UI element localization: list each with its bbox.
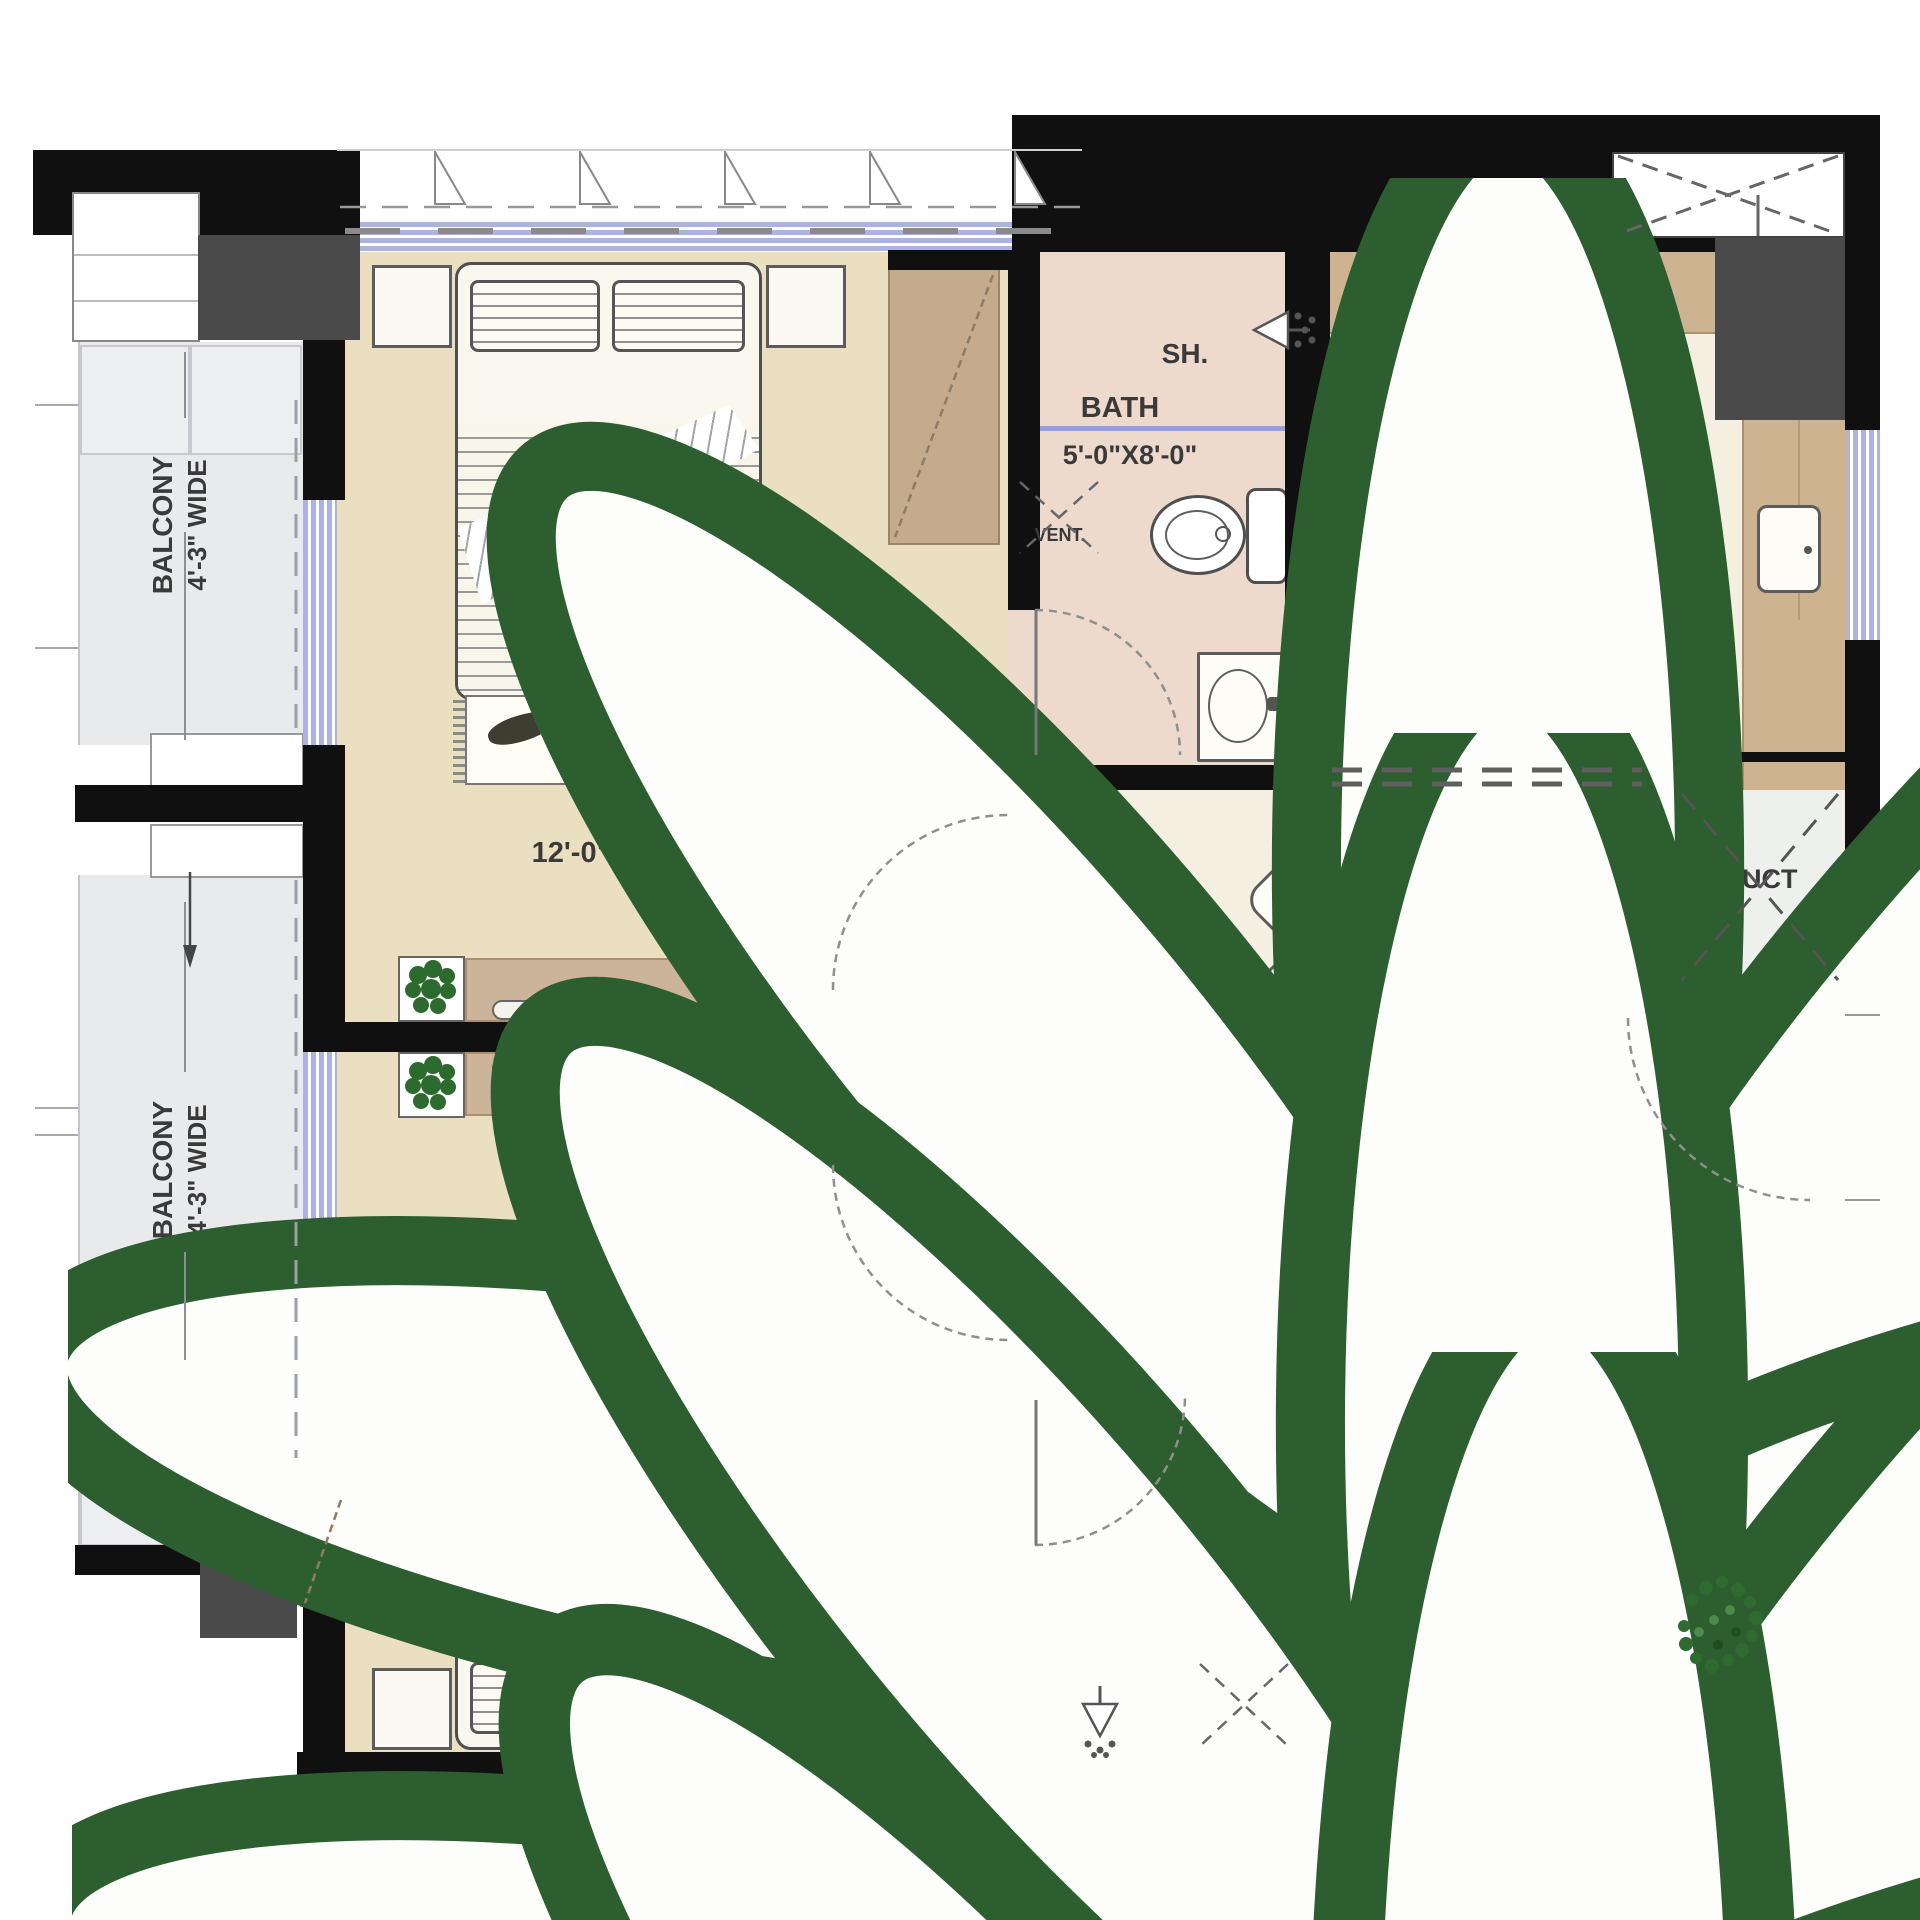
kitchen-label: KITCHEN 9'-9"X9'-6" [1417,568,1717,649]
nightstand [372,1668,452,1750]
bath-top-vent-label: VENT. [1018,524,1102,547]
room-name: BED [455,1185,755,1228]
balcony-bottom-window [303,1052,337,1445]
room-name: DUCT [1678,862,1842,897]
rug-ornament [666,715,728,739]
stove-burner [1501,272,1535,306]
wall-bottom [297,1752,1880,1792]
coffee-table-inner [1486,1344,1552,1488]
wall-bath-bottom-right [1285,1385,1315,1752]
column [1715,238,1845,420]
floor-plan: BALCONY 4'-3" WIDE BALCONY 4'-3" WIDE BE… [0,0,1920,1920]
tv-console [1772,1212,1845,1432]
wardrobe-top [888,268,1000,545]
plant-pot [398,1052,465,1118]
room-size: 12'-0"X13'-0" [455,1228,755,1266]
canopy-ticks [435,152,1045,204]
wall-bed-bath-1 [1008,250,1040,610]
sofa-cushion-line [1305,1383,1410,1385]
balcony-top-window [303,500,337,745]
room-size: 4'-3" WIDE [181,459,215,590]
bath-bottom-door-opening [1008,1400,1040,1545]
stove-burner [1498,309,1544,355]
bedroom-top-window [337,222,1082,252]
room-size: 9'-9"X9'-6" [1417,611,1717,649]
kitchen-window [1845,430,1880,640]
door-leaf-bedroom-top [830,982,1008,998]
duct-label: DUCT [1678,862,1842,897]
area-value: 1159.00 SFT [1360,1235,1700,1275]
pillow [470,280,600,352]
balcony-divider-box [150,733,304,787]
lounge-label: LOUNGE/DINN. 15'-2"X17'-9" [1320,1072,1700,1153]
wall-top-right-lower [1612,238,1718,252]
nightstand [766,1668,846,1750]
stove-icon [1487,253,1585,370]
room-size: 5'-0"X8'-0" [1040,438,1220,473]
wall-right-upper [1845,115,1880,430]
stove-burner [1543,314,1577,348]
room-name: BED [470,792,770,835]
toilet-tank [1246,488,1288,584]
area-label: AREA 1159.00 SFT [1360,1192,1700,1275]
shower-label: SH. [1048,1644,1158,1680]
bath-top-door-opening [1008,610,1040,755]
balcony-divider-box [150,824,304,878]
door-leaf-bedroom-bottom [830,1157,1008,1173]
plant-pot [398,956,465,1022]
wall-left-step [303,340,345,500]
washbasin-icon [1197,652,1290,762]
stove-burner [1536,267,1582,313]
bedroom-top-label: BED 12'-0"X13'-0" [470,792,770,873]
wall-top-main [1012,115,1612,252]
coffee-table [1476,1334,1562,1498]
window-mullion [74,254,198,256]
column [200,1468,297,1638]
sink-tap [1804,546,1812,554]
vent-label: VENT. [1018,524,1102,547]
window-mullion [74,300,198,302]
area-title: AREA [1360,1192,1700,1235]
nightstand [766,265,846,348]
entrance-opening [1845,1015,1880,1200]
kitchen-sink-icon [1757,505,1821,593]
nightstand [372,265,452,348]
shower-label: SH. [1130,336,1240,372]
wardrobe-bottom [300,1495,345,1607]
bath-bottom-size: 5'-0"X8'-0" [1028,1598,1208,1633]
wall-right-lower [1845,1200,1880,1792]
toilet-flush [1215,526,1231,542]
vent-panel [1612,152,1845,238]
bath-bottom-shower-label: SH. [1048,1644,1158,1680]
wall-left-low [303,1445,345,1495]
stove-handle [1500,374,1584,388]
duct-wall-top [1678,752,1845,762]
room-name: KITCHEN [1417,568,1717,611]
pillow [612,280,745,352]
stove-panel [1490,256,1582,267]
balcony-bottom-label: BALCONY 4'-3" WIDE [135,1050,225,1290]
sofa-arm-pillow [1404,1620,1516,1654]
wall-balcony-divider [75,785,315,822]
wall-bed-bath2 [1008,1545,1040,1752]
wall-bath-kitchen [1285,250,1330,765]
sofa-corner-cushion [1322,1568,1398,1644]
balcony-top-label: BALCONY 4'-3" WIDE [135,405,225,645]
toilet-icon [1147,1482,1243,1562]
column [198,235,360,340]
room-size: 5'-0"X8'-0" [1028,1598,1208,1633]
rug-ornament [575,1375,706,1402]
wall-bed-top-stub [888,250,1012,270]
wall-bath-bottom-top [1008,1355,1315,1385]
door-leaf-entrance [1797,1015,1813,1201]
dresser-mirror [492,1000,692,1020]
bath-top-size: 5'-0"X8'-0" [1040,438,1220,473]
basin-bowl [1208,669,1268,743]
wall-bedroom-divider [303,1022,1040,1052]
room-name: LOUNGE/DINN. [1320,1072,1700,1115]
wall-top-right-upper [1612,115,1845,152]
room-name: BALCONY [145,456,181,594]
bedroom-bottom-label: BED 12'-0"X13'-0" [455,1185,755,1266]
rug-ornament [577,732,708,759]
wall-bath-top-bottom [1008,765,1330,790]
railing-notch [35,405,78,1135]
toilet-icon [1150,495,1246,575]
bath-top-label: BATH [1045,390,1195,428]
tv-icon [1756,1256,1778,1430]
pillow [470,1662,600,1734]
column [1700,1433,1845,1563]
sofa-cushion-line [1305,1475,1410,1477]
bath-top-shower-label: SH. [1130,336,1240,372]
dresser-mirror [492,1058,692,1078]
duct-wall-bottom [1645,985,1880,1015]
duct-wall-left [1645,758,1678,1015]
rug-ornament [485,705,560,751]
basin-bowl [1206,1405,1266,1477]
wall-bed-lounge-mid [1008,990,1040,1165]
wall-balcony-end [75,1545,205,1575]
pillow [612,1662,745,1734]
room-size: 12'-0"X13'-0" [470,835,770,873]
room-name: BALCONY [145,1101,181,1239]
rug-ornament [483,1366,557,1408]
balcony-railing-panel [80,1432,190,1546]
bath-bottom-label: BATH [1040,1552,1195,1590]
bath-bottom-vent-label: VENT. [1204,1698,1288,1721]
vent-label: VENT. [1204,1698,1288,1721]
room-name: BATH [1040,1552,1195,1590]
toilet-flush [1212,1513,1228,1529]
basin-tap [1265,1433,1279,1447]
corner-window [72,192,200,342]
room-size: 15'-2"X17'-9" [1320,1115,1700,1153]
wall-right-mid [1845,640,1880,1015]
basin-tap [1267,697,1281,711]
room-name: BATH [1045,390,1195,428]
bed-rug [465,695,750,785]
toilet-tank [1243,1474,1285,1570]
room-size: 4'-3" WIDE [181,1104,215,1235]
